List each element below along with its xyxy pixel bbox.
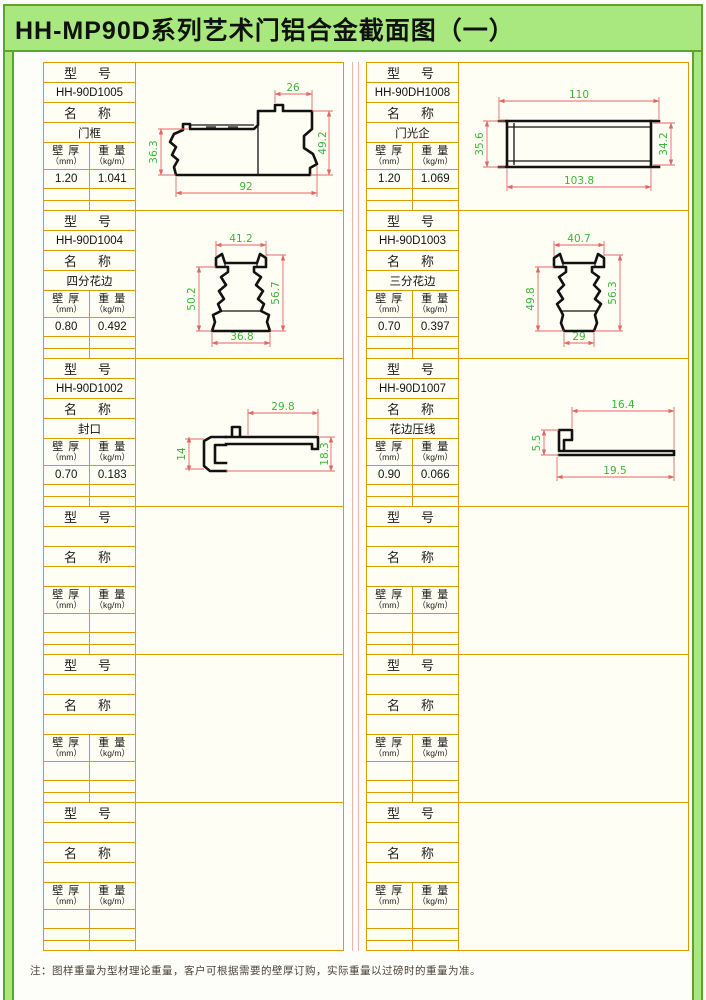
cross-section-drawing-third-lace: 40.7 29 49.8 56.3 (459, 210, 689, 359)
empty-cell (367, 485, 413, 497)
empty-cell (367, 781, 413, 793)
weight-header: 重 量（kg/m） (90, 439, 136, 466)
empty-cell (90, 941, 136, 950)
model-value (367, 527, 458, 547)
model-header: 型 号 (367, 803, 458, 823)
empty-cell (413, 337, 459, 349)
two-column-grid: 型 号 HH-90D1005 名 称 门框 壁 厚（mm） 重 量（kg/m） … (14, 55, 692, 951)
profile-entry-hh-90d1002: 型 号 HH-90D1002 名 称 封口 壁 厚（mm） 重 量（kg/m） … (43, 358, 344, 507)
weight-value: 1.041 (90, 170, 136, 189)
empty-cell (413, 201, 459, 210)
dim-label-left: 50.2 (186, 287, 198, 310)
weight-header: 重 量（kg/m） (413, 291, 459, 318)
model-header: 型 号 (44, 63, 135, 83)
cross-section-drawing-empty (136, 654, 344, 803)
empty-cell (413, 485, 459, 497)
spec-table: 型 号 名 称 壁 厚（mm） 重 量（kg/m） (366, 506, 459, 655)
model-value (44, 527, 135, 547)
empty-cell (413, 349, 459, 358)
left-frame-border (3, 52, 14, 1000)
pressing-strip-profile-svg: 16.4 19.5 5.5 (459, 359, 688, 506)
weight-value: 0.183 (90, 466, 136, 485)
catalog-page: HH-MP90D系列艺术门铝合金截面图（一） 型 号 HH-90D1005 名 … (0, 0, 706, 1000)
dim-label-right: 56.7 (270, 281, 282, 304)
weight-value (90, 762, 136, 781)
name-header: 名 称 (44, 251, 135, 271)
weight-value: 0.066 (413, 466, 459, 485)
profile-outline (507, 121, 651, 167)
weight-value (413, 614, 459, 633)
dim-label-left: 35.6 (474, 132, 486, 156)
empty-cell (90, 201, 136, 210)
empty-cell (413, 793, 459, 802)
dim-label-bottom: 19.5 (603, 465, 626, 477)
spec-table: 型 号 HH-90D1004 名 称 四分花边 壁 厚（mm） 重 量（kg/m… (43, 210, 136, 359)
model-value (44, 675, 135, 695)
weight-header: 重 量（kg/m） (413, 439, 459, 466)
empty-cell (367, 337, 413, 349)
name-value (44, 863, 135, 883)
weight-value (413, 910, 459, 929)
third-lace-profile-svg: 40.7 29 49.8 56.3 (459, 211, 688, 358)
empty-cell (90, 497, 136, 506)
profile-outline (212, 254, 270, 331)
spec-table: 型 号 名 称 壁 厚（mm） 重 量（kg/m） (366, 654, 459, 803)
name-header: 名 称 (44, 695, 135, 715)
profile-entry-blank: 型 号 名 称 壁 厚（mm） 重 量（kg/m） (43, 506, 344, 655)
name-value: 门光企 (367, 123, 458, 143)
model-value (367, 823, 458, 843)
empty-cell (44, 189, 90, 201)
dim-label-left: 36.3 (148, 140, 160, 163)
cross-section-drawing-door-frame: 26 92 36.3 49.2 (136, 62, 344, 211)
empty-cell (413, 781, 459, 793)
profile-end-tabs (499, 121, 659, 167)
name-header: 名 称 (44, 399, 135, 419)
name-value: 四分花边 (44, 271, 135, 291)
dim-label-left: 5.5 (531, 435, 543, 452)
thickness-value (44, 762, 90, 781)
profile-entry-blank: 型 号 名 称 壁 厚（mm） 重 量（kg/m） (366, 654, 689, 803)
quarter-lace-profile-svg: 41.2 36.8 50.2 56.7 (136, 211, 343, 358)
model-header: 型 号 (44, 655, 135, 675)
spec-table: 型 号 HH-90D1005 名 称 门框 壁 厚（mm） 重 量（kg/m） … (43, 62, 136, 211)
thickness-value (44, 614, 90, 633)
dim-label-top: 16.4 (611, 399, 635, 411)
name-header: 名 称 (367, 251, 458, 271)
weight-header: 重 量（kg/m） (90, 883, 136, 910)
profile-outline (559, 430, 674, 455)
right-column: 型 号 HH-90DH1008 名 称 门光企 壁 厚（mm） 重 量（kg/m… (366, 62, 689, 951)
empty-cell (367, 633, 413, 645)
name-header: 名 称 (367, 695, 458, 715)
empty-cell (44, 497, 90, 506)
weight-value (413, 762, 459, 781)
empty-cell (413, 929, 459, 941)
profile-entry-hh-90d1004: 型 号 HH-90D1004 名 称 四分花边 壁 厚（mm） 重 量（kg/m… (43, 210, 344, 359)
cross-section-drawing-sealing: 29.8 14 18.3 (136, 358, 344, 507)
empty-cell (90, 337, 136, 349)
thickness-header: 壁 厚（mm） (367, 143, 413, 170)
title-band: HH-MP90D系列艺术门铝合金截面图（一） (3, 4, 703, 52)
thickness-header: 壁 厚（mm） (367, 735, 413, 762)
dim-label-top: 40.7 (567, 233, 590, 245)
empty-cell (90, 485, 136, 497)
empty-cell (90, 349, 136, 358)
name-header: 名 称 (44, 843, 135, 863)
empty-cell (44, 201, 90, 210)
profile-outline (170, 105, 317, 175)
profile-inner-lines (190, 115, 258, 174)
footnote: 注：图样重量为型材理论重量，客户可根据需要的壁厚订购，实际重量以过磅时的重量为准… (30, 963, 692, 978)
empty-cell (367, 929, 413, 941)
model-header: 型 号 (367, 655, 458, 675)
thickness-header: 壁 厚（mm） (44, 735, 90, 762)
profile-entry-hh-90d1007: 型 号 HH-90D1007 名 称 花边压线 壁 厚（mm） 重 量（kg/m… (366, 358, 689, 507)
content-area: 型 号 HH-90D1005 名 称 门框 壁 厚（mm） 重 量（kg/m） … (14, 55, 692, 1000)
profile-channel (204, 437, 226, 471)
thickness-value (367, 614, 413, 633)
empty-cell (367, 349, 413, 358)
dim-label-left: 14 (176, 447, 188, 461)
thickness-value: 0.80 (44, 318, 90, 337)
spec-table: 型 号 HH-90D1002 名 称 封口 壁 厚（mm） 重 量（kg/m） … (43, 358, 136, 507)
empty-cell (44, 645, 90, 654)
cross-section-drawing-pressing-strip: 16.4 19.5 5.5 (459, 358, 689, 507)
profile-entry-blank: 型 号 名 称 壁 厚（mm） 重 量（kg/m） (366, 506, 689, 655)
spec-table: 型 号 HH-90D1007 名 称 花边压线 壁 厚（mm） 重 量（kg/m… (366, 358, 459, 507)
name-value: 花边压线 (367, 419, 458, 439)
model-value: HH-90D1004 (44, 231, 135, 251)
thickness-header: 壁 厚（mm） (367, 883, 413, 910)
profile-entry-blank: 型 号 名 称 壁 厚（mm） 重 量（kg/m） (43, 654, 344, 803)
empty-cell (367, 793, 413, 802)
profile-entry-hh-90dh1008: 型 号 HH-90DH1008 名 称 门光企 壁 厚（mm） 重 量（kg/m… (366, 62, 689, 211)
weight-value: 0.492 (90, 318, 136, 337)
model-value: HH-90DH1008 (367, 83, 458, 103)
weight-value: 1.069 (413, 170, 459, 189)
empty-cell (44, 929, 90, 941)
cross-section-drawing-empty (459, 802, 689, 951)
dim-label-right: 34.2 (658, 132, 670, 155)
model-header: 型 号 (44, 211, 135, 231)
column-divider (344, 62, 366, 951)
spec-table: 型 号 名 称 壁 厚（mm） 重 量（kg/m） (43, 506, 136, 655)
model-header: 型 号 (367, 63, 458, 83)
door-frame-profile-svg: 26 92 36.3 49.2 (136, 63, 343, 210)
cross-section-drawing-empty (459, 506, 689, 655)
dim-label-top: 110 (569, 89, 589, 101)
empty-cell (44, 485, 90, 497)
empty-cell (44, 941, 90, 950)
weight-header: 重 量（kg/m） (90, 587, 136, 614)
weight-value (90, 614, 136, 633)
spec-table: 型 号 HH-90D1003 名 称 三分花边 壁 厚（mm） 重 量（kg/m… (366, 210, 459, 359)
name-value: 三分花边 (367, 271, 458, 291)
empty-cell (413, 941, 459, 950)
name-header: 名 称 (367, 103, 458, 123)
right-frame-border (692, 52, 703, 1000)
model-value: HH-90D1007 (367, 379, 458, 399)
model-value (44, 823, 135, 843)
weight-value (90, 910, 136, 929)
model-value: HH-90D1002 (44, 379, 135, 399)
profile-outline (554, 254, 604, 331)
name-header: 名 称 (367, 843, 458, 863)
name-value (44, 715, 135, 735)
thickness-header: 壁 厚（mm） (44, 587, 90, 614)
model-header: 型 号 (367, 359, 458, 379)
profile-entry-hh-90d1005: 型 号 HH-90D1005 名 称 门框 壁 厚（mm） 重 量（kg/m） … (43, 62, 344, 211)
empty-cell (413, 645, 459, 654)
dim-label-left: 49.8 (525, 287, 537, 310)
thickness-value: 1.20 (44, 170, 90, 189)
weight-header: 重 量（kg/m） (413, 735, 459, 762)
name-header: 名 称 (367, 547, 458, 567)
model-header: 型 号 (44, 507, 135, 527)
empty-cell (90, 645, 136, 654)
thickness-header: 壁 厚（mm） (367, 587, 413, 614)
page-title: HH-MP90D系列艺术门铝合金截面图（一） (5, 9, 515, 47)
profile-entry-hh-90d1003: 型 号 HH-90D1003 名 称 三分花边 壁 厚（mm） 重 量（kg/m… (366, 210, 689, 359)
model-value (367, 675, 458, 695)
spec-table: 型 号 名 称 壁 厚（mm） 重 量（kg/m） (43, 802, 136, 951)
empty-cell (44, 633, 90, 645)
dim-label-right: 49.2 (317, 131, 329, 154)
thickness-value: 1.20 (367, 170, 413, 189)
thickness-header: 壁 厚（mm） (44, 439, 90, 466)
thickness-value (44, 910, 90, 929)
profile-entry-blank: 型 号 名 称 壁 厚（mm） 重 量（kg/m） (43, 802, 344, 951)
dim-label-bottom: 103.8 (564, 175, 594, 187)
name-value: 门框 (44, 123, 135, 143)
thickness-header: 壁 厚（mm） (367, 439, 413, 466)
thickness-header: 壁 厚（mm） (44, 883, 90, 910)
weight-value: 0.397 (413, 318, 459, 337)
sealing-profile-svg: 29.8 14 18.3 (136, 359, 343, 506)
cross-section-drawing-door-stile: 110 103.8 35.6 34.2 (459, 62, 689, 211)
empty-cell (413, 633, 459, 645)
profile-inner-lines (507, 123, 651, 165)
empty-cell (44, 781, 90, 793)
dim-label-bottom: 36.8 (230, 331, 253, 343)
empty-cell (90, 189, 136, 201)
thickness-value: 0.90 (367, 466, 413, 485)
dim-label-bottom: 29 (572, 331, 585, 343)
model-value: HH-90D1005 (44, 83, 135, 103)
name-value (367, 715, 458, 735)
weight-header: 重 量（kg/m） (90, 291, 136, 318)
name-header: 名 称 (367, 399, 458, 419)
name-value (367, 567, 458, 587)
thickness-header: 壁 厚（mm） (44, 143, 90, 170)
name-header: 名 称 (44, 103, 135, 123)
weight-header: 重 量（kg/m） (413, 143, 459, 170)
profile-arm (226, 427, 318, 449)
dim-label-top: 41.2 (229, 233, 252, 245)
model-header: 型 号 (367, 211, 458, 231)
model-header: 型 号 (44, 803, 135, 823)
weight-header: 重 量（kg/m） (90, 143, 136, 170)
empty-cell (413, 189, 459, 201)
empty-cell (44, 337, 90, 349)
empty-cell (367, 497, 413, 506)
empty-cell (44, 793, 90, 802)
empty-cell (367, 189, 413, 201)
dim-label-right: 18.3 (319, 442, 331, 465)
name-value (44, 567, 135, 587)
name-value (367, 863, 458, 883)
dim-label-top: 26 (286, 82, 300, 94)
empty-cell (367, 201, 413, 210)
door-stile-profile-svg: 110 103.8 35.6 34.2 (459, 63, 688, 210)
empty-cell (90, 929, 136, 941)
empty-cell (90, 793, 136, 802)
thickness-header: 壁 厚（mm） (44, 291, 90, 318)
spec-table: 型 号 名 称 壁 厚（mm） 重 量（kg/m） (43, 654, 136, 803)
empty-cell (367, 645, 413, 654)
spec-table: 型 号 名 称 壁 厚（mm） 重 量（kg/m） (366, 802, 459, 951)
weight-header: 重 量（kg/m） (413, 587, 459, 614)
weight-header: 重 量（kg/m） (413, 883, 459, 910)
name-header: 名 称 (44, 547, 135, 567)
empty-cell (413, 497, 459, 506)
cross-section-drawing-empty (136, 506, 344, 655)
profile-entry-blank: 型 号 名 称 壁 厚（mm） 重 量（kg/m） (366, 802, 689, 951)
empty-cell (90, 781, 136, 793)
empty-cell (44, 349, 90, 358)
dim-label-bottom: 92 (239, 181, 252, 193)
cross-section-drawing-empty (459, 654, 689, 803)
thickness-header: 壁 厚（mm） (367, 291, 413, 318)
cross-section-drawing-quarter-lace: 41.2 36.8 50.2 56.7 (136, 210, 344, 359)
thickness-value (367, 910, 413, 929)
weight-header: 重 量（kg/m） (90, 735, 136, 762)
spec-table: 型 号 HH-90DH1008 名 称 门光企 壁 厚（mm） 重 量（kg/m… (366, 62, 459, 211)
empty-cell (367, 941, 413, 950)
thickness-value (367, 762, 413, 781)
name-value: 封口 (44, 419, 135, 439)
dim-label-top: 29.8 (271, 401, 294, 413)
empty-cell (90, 633, 136, 645)
left-column: 型 号 HH-90D1005 名 称 门框 壁 厚（mm） 重 量（kg/m） … (43, 62, 344, 951)
model-header: 型 号 (44, 359, 135, 379)
thickness-value: 0.70 (367, 318, 413, 337)
model-value: HH-90D1003 (367, 231, 458, 251)
dim-label-right: 56.3 (607, 281, 619, 304)
model-header: 型 号 (367, 507, 458, 527)
thickness-value: 0.70 (44, 466, 90, 485)
cross-section-drawing-empty (136, 802, 344, 951)
